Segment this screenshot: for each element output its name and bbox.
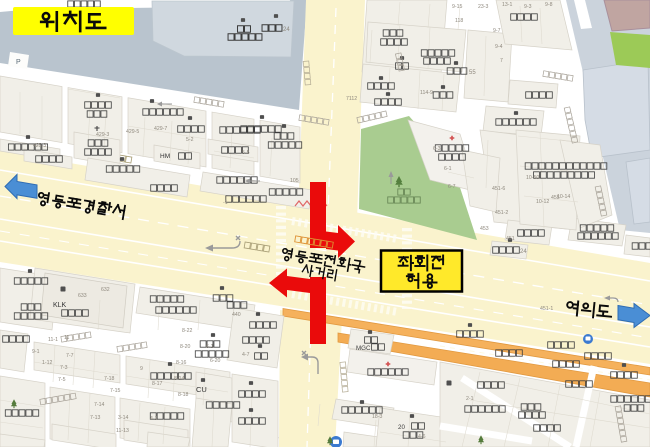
svg-text:425-3: 425-3 (33, 143, 46, 149)
svg-text:24: 24 (283, 27, 290, 33)
svg-text:13-1: 13-1 (502, 2, 512, 8)
svg-text:-1: -1 (223, 200, 228, 206)
svg-text:9-3: 9-3 (524, 4, 532, 10)
svg-text:6-1: 6-1 (206, 344, 214, 350)
svg-text:7-3: 7-3 (60, 365, 68, 371)
svg-text:7-14: 7-14 (94, 402, 104, 408)
svg-text:9: 9 (140, 366, 143, 372)
svg-text:55: 55 (469, 70, 476, 76)
svg-text:455: 455 (551, 195, 560, 201)
svg-text:5-5: 5-5 (242, 150, 250, 156)
svg-text:8-22: 8-22 (182, 328, 192, 334)
svg-text:9-7: 9-7 (493, 28, 501, 34)
svg-text:7-5: 7-5 (58, 377, 66, 383)
svg-text:10-12: 10-12 (536, 199, 549, 205)
svg-text:8-16: 8-16 (176, 360, 186, 366)
svg-text:4-1: 4-1 (150, 416, 158, 422)
svg-text:451-2: 451-2 (495, 210, 508, 216)
svg-text:11: 11 (64, 335, 69, 341)
svg-text:451-1: 451-1 (540, 306, 553, 312)
svg-text:5-2: 5-2 (186, 137, 194, 143)
svg-text:11-1: 11-1 (48, 337, 58, 343)
svg-text:8-14: 8-14 (174, 376, 184, 382)
svg-text:453: 453 (480, 226, 489, 232)
svg-text:440: 440 (232, 312, 241, 318)
svg-text:1-12: 1-12 (42, 360, 52, 366)
svg-text:632: 632 (101, 287, 110, 293)
svg-text:4-6: 4-6 (418, 434, 426, 440)
svg-text:2-1: 2-1 (466, 396, 474, 402)
svg-text:9-8: 9-8 (545, 2, 553, 8)
svg-text:429-5: 429-5 (126, 129, 139, 135)
svg-text:CU: CU (196, 385, 207, 394)
svg-text:24: 24 (520, 249, 527, 255)
svg-text:P: P (16, 59, 21, 66)
svg-text:3-14: 3-14 (118, 415, 128, 421)
svg-text:6-1: 6-1 (444, 166, 452, 172)
svg-text:9-4: 9-4 (495, 44, 503, 50)
svg-text:7-18: 7-18 (104, 376, 114, 382)
svg-text:10-50: 10-50 (526, 175, 539, 181)
svg-text:9-1: 9-1 (32, 349, 40, 355)
svg-text:429-7: 429-7 (154, 126, 167, 132)
svg-text:8-20: 8-20 (180, 344, 190, 350)
svg-text:7-13: 7-13 (90, 415, 100, 421)
svg-text:6-7: 6-7 (448, 184, 456, 190)
svg-text:429-3: 429-3 (96, 132, 109, 138)
svg-text:7-15: 7-15 (110, 388, 120, 394)
svg-text:6-3: 6-3 (433, 146, 441, 152)
svg-text:23-3: 23-3 (478, 4, 488, 10)
svg-text:8-18: 8-18 (178, 392, 188, 398)
svg-text:11-13: 11-13 (116, 428, 129, 434)
svg-text:8-17: 8-17 (152, 381, 162, 387)
svg-text:633: 633 (78, 293, 87, 299)
svg-text:451: 451 (506, 236, 515, 242)
svg-text:114-9: 114-9 (420, 90, 433, 96)
svg-text:7112: 7112 (346, 96, 357, 102)
svg-text:7: 7 (500, 58, 503, 64)
svg-text:18-3: 18-3 (372, 414, 382, 420)
svg-text:KLK: KLK (53, 302, 67, 309)
svg-text:20: 20 (398, 424, 405, 431)
svg-text:MGC: MGC (356, 345, 371, 352)
svg-text:6-20: 6-20 (210, 358, 220, 364)
svg-text:9-15: 9-15 (452, 4, 462, 10)
svg-text:HM: HM (160, 153, 170, 160)
svg-text:118: 118 (455, 18, 463, 24)
svg-text:105: 105 (290, 178, 299, 184)
svg-text:4-7: 4-7 (242, 352, 250, 358)
svg-text:7-7: 7-7 (66, 353, 74, 359)
svg-text:451-6: 451-6 (492, 186, 505, 192)
